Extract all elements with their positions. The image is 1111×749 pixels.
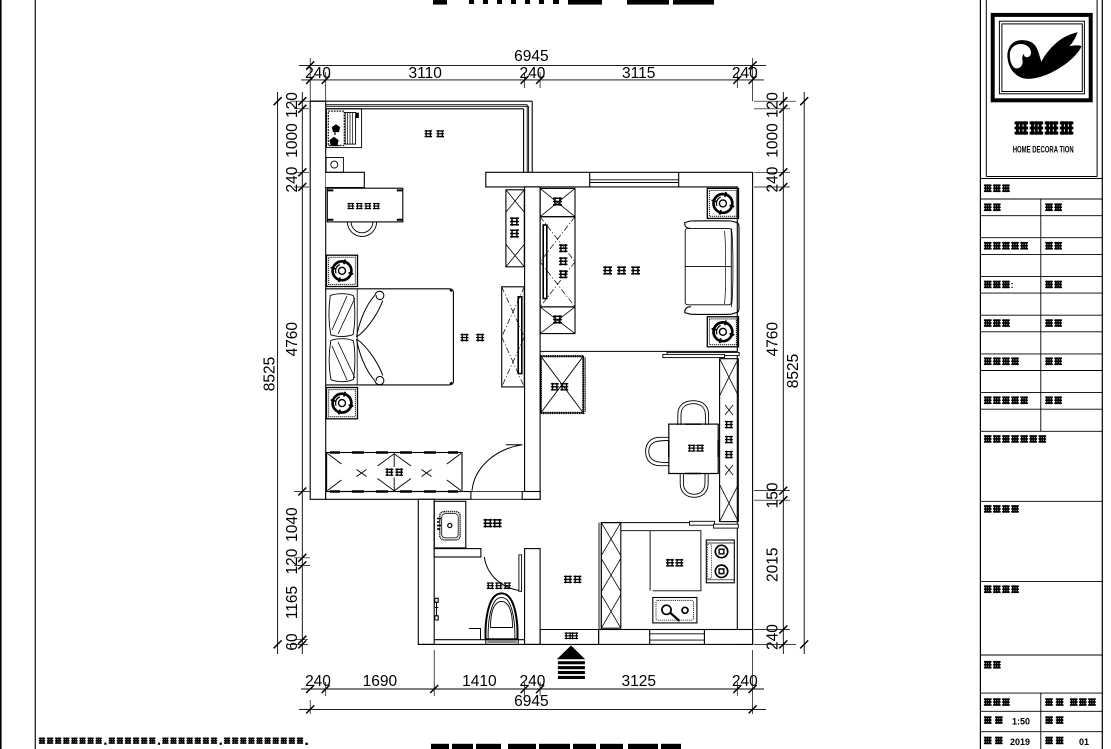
svg-text:240: 240 xyxy=(765,166,782,192)
svg-text:150: 150 xyxy=(765,482,782,508)
svg-text:240: 240 xyxy=(732,673,758,690)
svg-text:1000: 1000 xyxy=(765,123,782,158)
svg-text:240: 240 xyxy=(305,65,331,82)
svg-text:3110: 3110 xyxy=(409,65,443,82)
svg-text:3115: 3115 xyxy=(622,65,655,82)
svg-text:1000: 1000 xyxy=(284,123,301,158)
svg-text:60: 60 xyxy=(284,633,301,651)
svg-text:1040: 1040 xyxy=(284,507,301,542)
svg-text:1165: 1165 xyxy=(284,586,301,619)
svg-text:4760: 4760 xyxy=(284,322,301,357)
svg-text:1:50: 1:50 xyxy=(1012,717,1030,727)
svg-text:HOME DECORA TION: HOME DECORA TION xyxy=(1013,145,1074,156)
svg-text:8525: 8525 xyxy=(785,354,802,388)
svg-text:6945: 6945 xyxy=(514,693,548,710)
svg-text:01: 01 xyxy=(1079,737,1089,747)
svg-text:120: 120 xyxy=(284,548,301,574)
svg-text:240: 240 xyxy=(519,673,545,690)
svg-text:1410: 1410 xyxy=(462,673,497,690)
svg-text:1690: 1690 xyxy=(363,673,398,690)
svg-text:120: 120 xyxy=(765,92,782,118)
svg-text:4760: 4760 xyxy=(765,322,782,357)
svg-text:6945: 6945 xyxy=(514,48,548,65)
svg-text:240: 240 xyxy=(284,166,301,192)
svg-text:2019: 2019 xyxy=(1010,737,1030,747)
svg-text:240: 240 xyxy=(519,65,545,82)
svg-text:8525: 8525 xyxy=(262,357,279,391)
svg-text:240: 240 xyxy=(732,65,758,82)
svg-text:3125: 3125 xyxy=(621,673,655,690)
svg-text:2015: 2015 xyxy=(765,548,782,582)
svg-text:120: 120 xyxy=(284,92,301,118)
svg-text:240: 240 xyxy=(765,624,782,650)
svg-text::: : xyxy=(1011,280,1014,290)
svg-text:240: 240 xyxy=(305,673,331,690)
